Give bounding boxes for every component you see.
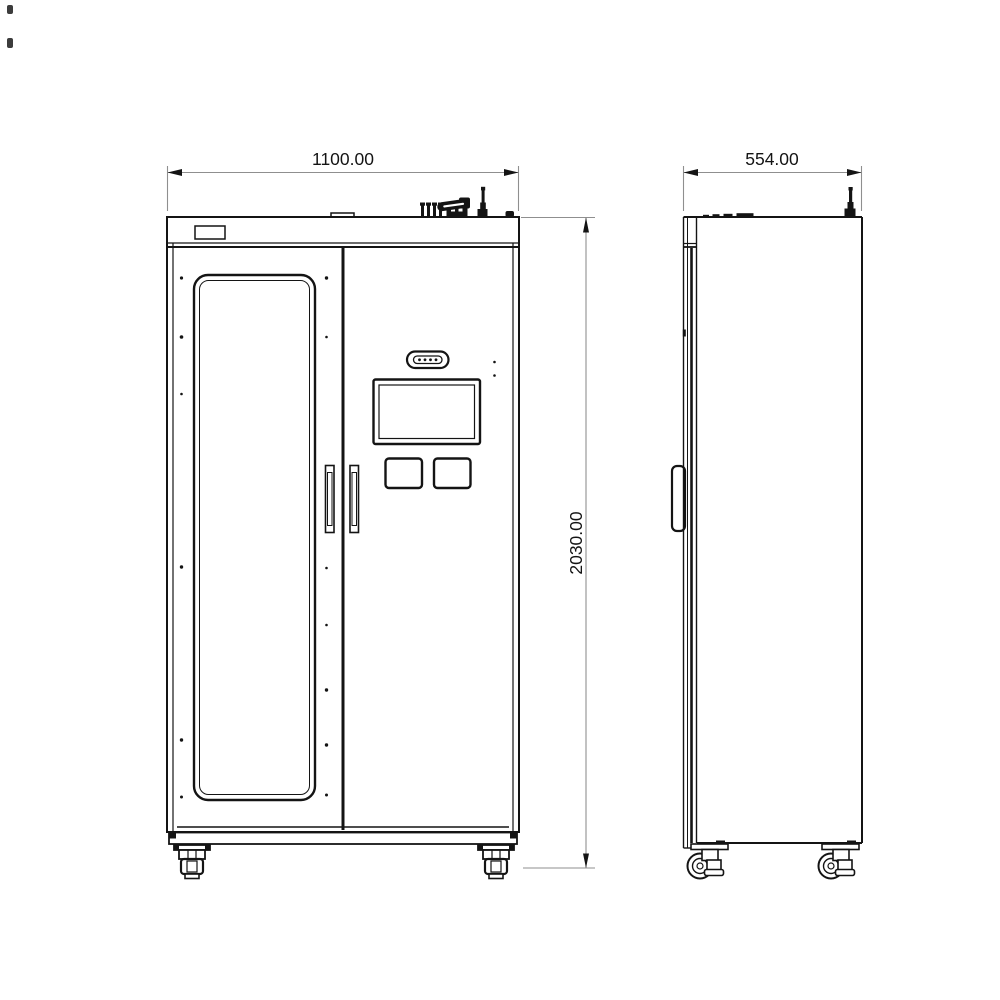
corner-artifact-2 [7,38,13,48]
front-cabinet [167,217,519,879]
dim-width-value: 1100.00 [312,149,374,169]
corner-artifact-1 [7,5,13,14]
screw-dot [493,361,496,364]
dim-depth-value: 554.00 [745,149,799,169]
cabinet-engineering-drawing: 1100.00 2030.00 [0,0,1000,1000]
door-handle-right [350,466,359,533]
front-base [169,833,517,845]
door-latch-mark [683,330,686,337]
nameplate [195,226,225,239]
dim-height-value: 2030.00 [566,511,586,575]
screw-dot [493,374,496,377]
base-end-left [169,833,176,839]
door-handle-left [326,466,335,533]
drawing-canvas: 1100.00 2030.00 [0,0,1000,1000]
base-band [169,833,517,845]
base-end-right [510,833,517,839]
